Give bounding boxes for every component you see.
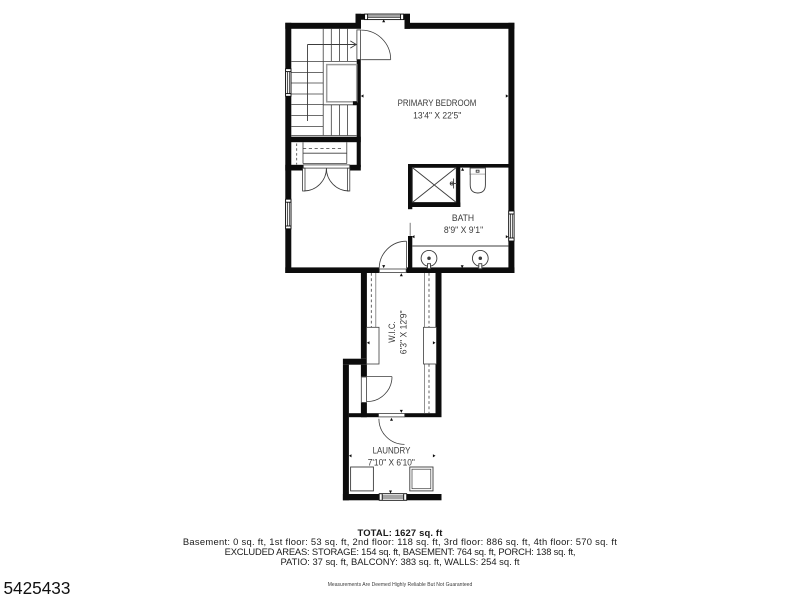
- svg-text:PRIMARY BEDROOM: PRIMARY BEDROOM: [398, 98, 477, 109]
- svg-text:W.I.C.: W.I.C.: [387, 321, 398, 342]
- svg-text:7'10" X 6'10": 7'10" X 6'10": [368, 458, 415, 469]
- svg-text:BATH: BATH: [452, 213, 474, 224]
- svg-text:13'4" X 22'5": 13'4" X 22'5": [413, 110, 461, 121]
- svg-text:LAUNDRY: LAUNDRY: [373, 446, 411, 457]
- svg-text:6'3" X 12'9": 6'3" X 12'9": [399, 310, 410, 354]
- svg-text:8'9" X 9'1": 8'9" X 9'1": [444, 225, 483, 236]
